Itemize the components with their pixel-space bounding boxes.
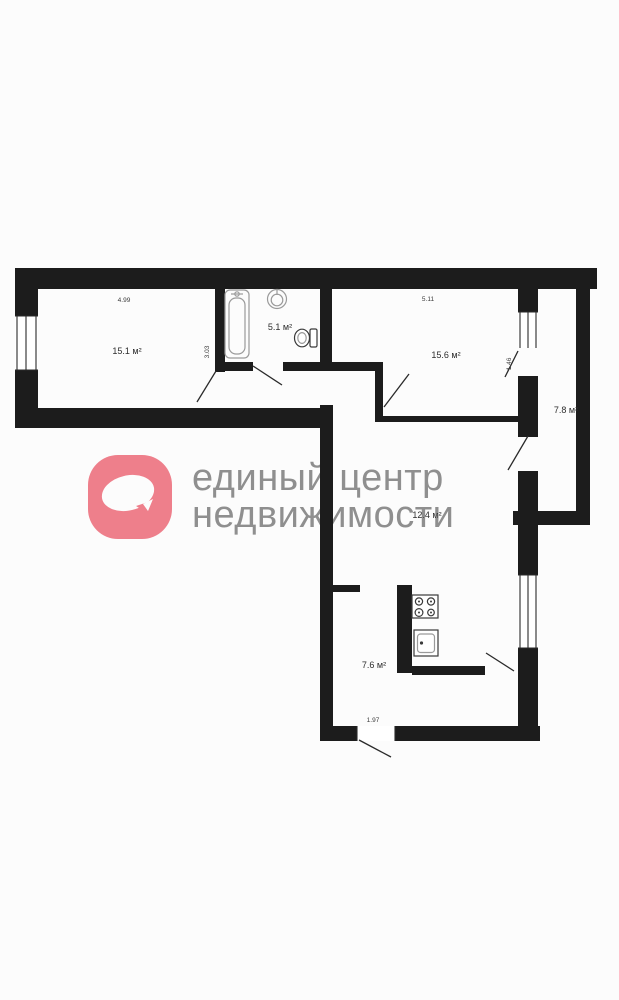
- living-area-label: 15.1 м²: [112, 346, 141, 356]
- bedroom-area-label: 15.6 м²: [431, 350, 460, 360]
- toilet-icon: [295, 329, 318, 347]
- bedroom-balcony-window-icon: [518, 312, 538, 348]
- living-window-icon: [15, 316, 38, 370]
- bedroom-door-icon: [384, 374, 409, 407]
- hallway-balcony-door-icon: [508, 436, 528, 470]
- floorplan-page: 15.1 м² 5.1 м² 15.6 м² 7.8 м² 12.4 м² 7.…: [0, 0, 619, 1000]
- living-depth-dim: 3.03: [204, 345, 211, 358]
- kitchen-sink-icon: [414, 630, 438, 656]
- bathroom-door-icon: [253, 366, 282, 385]
- bathtub-icon: [225, 290, 249, 358]
- balcony-door-dim: 1.46: [506, 357, 513, 370]
- windows: [15, 312, 538, 648]
- kitchen-area-label: 7.6 м²: [362, 660, 386, 670]
- vestibule-window-icon: [518, 575, 538, 648]
- loggia-area-label: 7.8 м²: [554, 405, 578, 415]
- bathroom-area-label: 5.1 м²: [268, 322, 292, 332]
- vestibule-door-icon: [486, 653, 514, 671]
- floor-plan: 15.1 м² 5.1 м² 15.6 м² 7.8 м² 12.4 м² 7.…: [0, 0, 619, 1000]
- bedroom-width-dim: 5.11: [422, 296, 435, 303]
- sink-icon: [268, 290, 287, 309]
- entrance-door-icon: [359, 740, 391, 757]
- dimension-labels: 4.99 3.03 5.11 1.46 1.97: [118, 296, 513, 724]
- room-labels: 15.1 м² 5.1 м² 15.6 м² 7.8 м² 12.4 м² 7.…: [112, 322, 578, 670]
- living-width-dim: 4.99: [118, 297, 131, 304]
- hallway-area-label: 12.4 м²: [412, 510, 441, 520]
- kitchen-width-dim: 1.97: [367, 717, 380, 724]
- stove-icon: [412, 595, 438, 618]
- living-door-icon: [197, 371, 216, 402]
